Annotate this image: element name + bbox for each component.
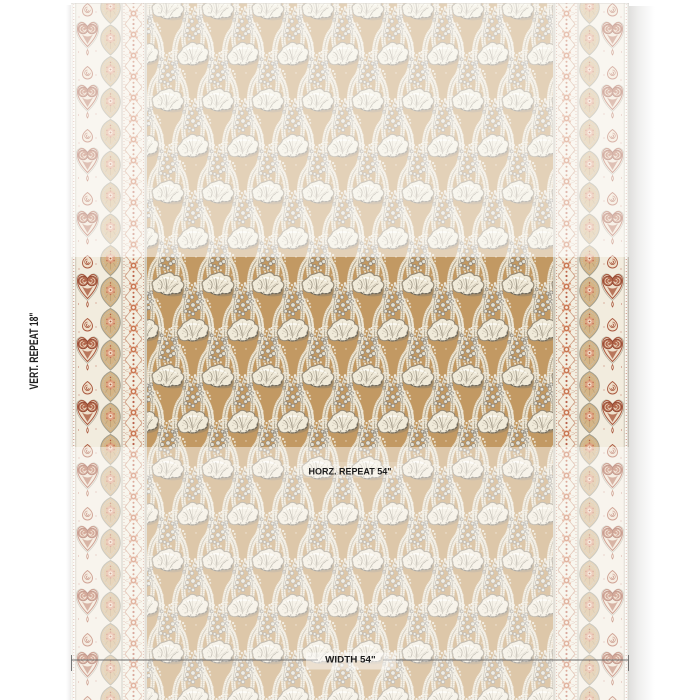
svg-text:HORZ. REPEAT 54": HORZ. REPEAT 54" (309, 466, 392, 477)
svg-text:WIDTH 54": WIDTH 54" (325, 653, 376, 664)
svg-text:VERT. REPEAT 18": VERT. REPEAT 18" (27, 313, 41, 390)
